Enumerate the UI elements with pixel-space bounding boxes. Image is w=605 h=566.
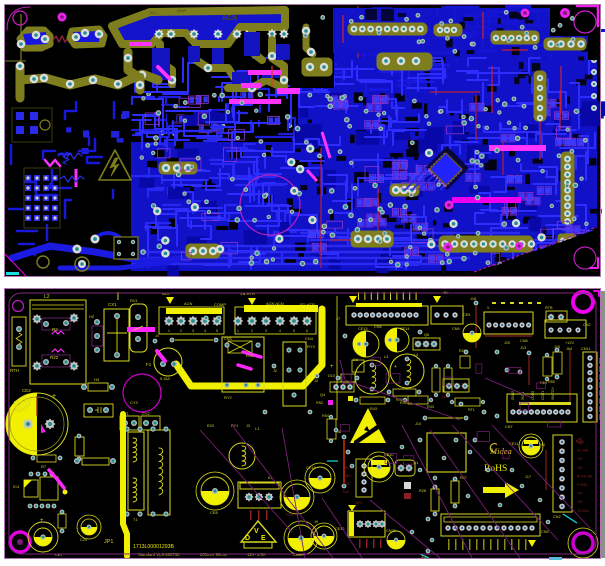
svg-text:JP1: JP1: [104, 539, 113, 545]
svg-text:VO-DML: VO-DML: [577, 509, 590, 513]
svg-text:C25: C25: [80, 538, 87, 542]
svg-text:J20: J20: [504, 341, 510, 345]
svg-text:1: 1: [168, 329, 170, 333]
svg-text:CN20: CN20: [386, 529, 396, 533]
svg-text:CN2: CN2: [553, 515, 561, 519]
svg-text:J2: J2: [273, 369, 277, 373]
svg-text:CN11: CN11: [581, 347, 590, 351]
svg-text:RY3: RY3: [307, 344, 315, 349]
svg-text:1713L00001293B: 1713L00001293B: [133, 544, 175, 550]
svg-text:CY3: CY3: [130, 400, 139, 405]
svg-text:J9: J9: [314, 520, 318, 524]
svg-text:D: D: [245, 535, 250, 542]
svg-text:ACN: ACN: [222, 15, 237, 22]
svg-text:+5V: +5V: [577, 500, 584, 504]
svg-text:RY1: RY1: [231, 424, 238, 428]
svg-text:+5V: +5V: [343, 466, 350, 470]
svg-text:R52: R52: [316, 401, 323, 405]
svg-text:J3: J3: [314, 379, 318, 383]
svg-text:RST: RST: [343, 482, 351, 486]
svg-text:V: V: [254, 528, 259, 535]
svg-text:P-GND: P-GND: [577, 483, 588, 487]
svg-text:R28: R28: [419, 489, 426, 493]
svg-text:H2: H2: [89, 314, 95, 319]
svg-text:CN2: CN2: [583, 323, 591, 327]
svg-text:RTL: RTL: [468, 408, 475, 412]
svg-text:5: 5: [216, 329, 218, 333]
svg-text:CN3: CN3: [224, 337, 232, 341]
svg-text:H3: H3: [94, 377, 100, 382]
svg-text:ISP1: ISP1: [355, 501, 363, 505]
svg-text:IC4: IC4: [13, 484, 20, 489]
svg-text:2: 2: [180, 329, 182, 333]
svg-text:D10: D10: [328, 374, 335, 378]
svg-text:3: 3: [265, 329, 267, 333]
svg-text:+5V: +5V: [577, 492, 584, 496]
svg-text:R50: R50: [548, 380, 555, 384]
svg-text:J13: J13: [520, 346, 526, 350]
svg-text:GND2: GND2: [511, 391, 515, 400]
svg-text:4: 4: [204, 329, 206, 333]
svg-text:GND: GND: [343, 474, 351, 478]
svg-text:J64: J64: [566, 347, 572, 351]
svg-text:CN7: CN7: [505, 425, 513, 429]
svg-text:R43: R43: [427, 405, 434, 409]
svg-text:R20: R20: [207, 424, 214, 428]
svg-text:CE8: CE8: [210, 510, 219, 515]
svg-text:L4: L4: [414, 353, 418, 357]
svg-text:+12V: +12V: [565, 341, 574, 345]
svg-text:3: 3: [192, 329, 194, 333]
svg-text:CE13: CE13: [306, 466, 316, 470]
svg-text:T1: T1: [133, 517, 138, 522]
svg-text:CN4: CN4: [305, 336, 314, 341]
svg-text:SWITCH: SWITCH: [551, 387, 555, 400]
svg-text:CY2: CY2: [142, 411, 151, 416]
svg-text:L2: L2: [44, 294, 50, 300]
svg-text:E: E: [261, 535, 266, 542]
svg-text:F1: F1: [146, 362, 152, 367]
svg-text:J4: J4: [155, 334, 159, 338]
svg-text:CX1: CX1: [108, 302, 117, 307]
svg-text:R43: R43: [370, 407, 377, 411]
svg-text:+: +: [330, 364, 334, 370]
svg-text:J30: J30: [539, 443, 545, 447]
svg-text:ACL: ACL: [150, 11, 157, 15]
svg-text:J3: J3: [246, 424, 250, 428]
svg-text:RV1: RV1: [130, 298, 138, 303]
svg-text:J43: J43: [441, 395, 447, 399]
svg-text:+: +: [40, 518, 44, 524]
svg-text:6: 6: [306, 329, 308, 333]
svg-text:CN9: CN9: [452, 327, 460, 331]
svg-text:4: 4: [279, 329, 281, 333]
svg-text:1: 1: [237, 329, 239, 333]
svg-text:J18: J18: [470, 297, 476, 301]
svg-text:CE13: CE13: [358, 327, 368, 331]
svg-text:+5V: +5V: [577, 457, 584, 461]
svg-text:J10: J10: [415, 422, 421, 426]
svg-text:Tool: Tool: [342, 490, 349, 494]
svg-text:AC-DML: AC-DML: [577, 449, 589, 453]
svg-text:CDM1: CDM1: [541, 391, 545, 400]
svg-text:CE2: CE2: [22, 388, 31, 393]
svg-text:L3: L3: [384, 355, 388, 359]
svg-text:CN6: CN6: [374, 325, 382, 329]
svg-text:+5V: +5V: [577, 466, 584, 470]
svg-text:COM2: COM2: [531, 391, 535, 400]
svg-text:+: +: [394, 364, 397, 370]
svg-text:5KQ1: 5KQ1: [521, 392, 525, 400]
svg-text:RV2: RV2: [246, 353, 254, 358]
svg-text:+: +: [52, 393, 56, 400]
svg-text:CN5: CN5: [541, 530, 549, 534]
svg-text:R7: R7: [41, 464, 47, 469]
svg-text:R22: R22: [50, 355, 59, 360]
svg-text:Q6: Q6: [424, 333, 429, 337]
svg-text:RY2: RY2: [224, 395, 232, 400]
svg-text:J17: J17: [525, 475, 531, 479]
svg-text:Q4: Q4: [320, 393, 325, 397]
svg-text:L1: L1: [255, 426, 260, 431]
svg-text:RTB: RTB: [545, 306, 553, 310]
svg-text:ABAP: ABAP: [177, 9, 187, 13]
svg-text:X1: X1: [414, 461, 419, 465]
svg-text:GND: GND: [577, 440, 585, 444]
svg-text:R54: R54: [322, 414, 329, 418]
svg-text:CN8: CN8: [520, 339, 528, 343]
svg-text:ACN: ACN: [184, 301, 193, 306]
svg-text:COMP: COMP: [214, 302, 226, 307]
svg-text:RCTA-DML: RCTA-DML: [577, 474, 593, 478]
svg-text:RTH: RTH: [10, 368, 19, 373]
svg-text:CE6: CE6: [463, 313, 470, 317]
svg-text:5.15A: 5.15A: [160, 377, 170, 381]
svg-text:2: 2: [251, 329, 253, 333]
svg-text:5: 5: [293, 329, 295, 333]
svg-text:CE9: CE9: [286, 513, 293, 517]
